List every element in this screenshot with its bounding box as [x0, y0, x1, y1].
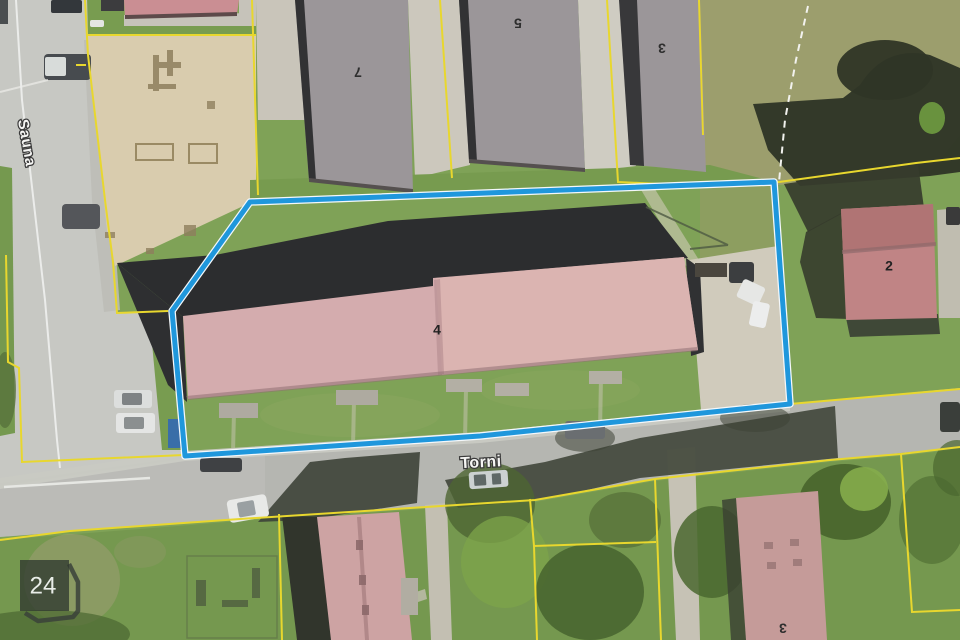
svg-text:2: 2 — [885, 258, 893, 274]
svg-text:5: 5 — [514, 15, 522, 31]
svg-text:3: 3 — [779, 620, 787, 636]
svg-text:7: 7 — [354, 64, 362, 80]
svg-text:24: 24 — [30, 572, 57, 599]
svg-text:Torni: Torni — [460, 453, 502, 472]
svg-text:3: 3 — [658, 40, 666, 56]
svg-text:4: 4 — [433, 322, 441, 338]
